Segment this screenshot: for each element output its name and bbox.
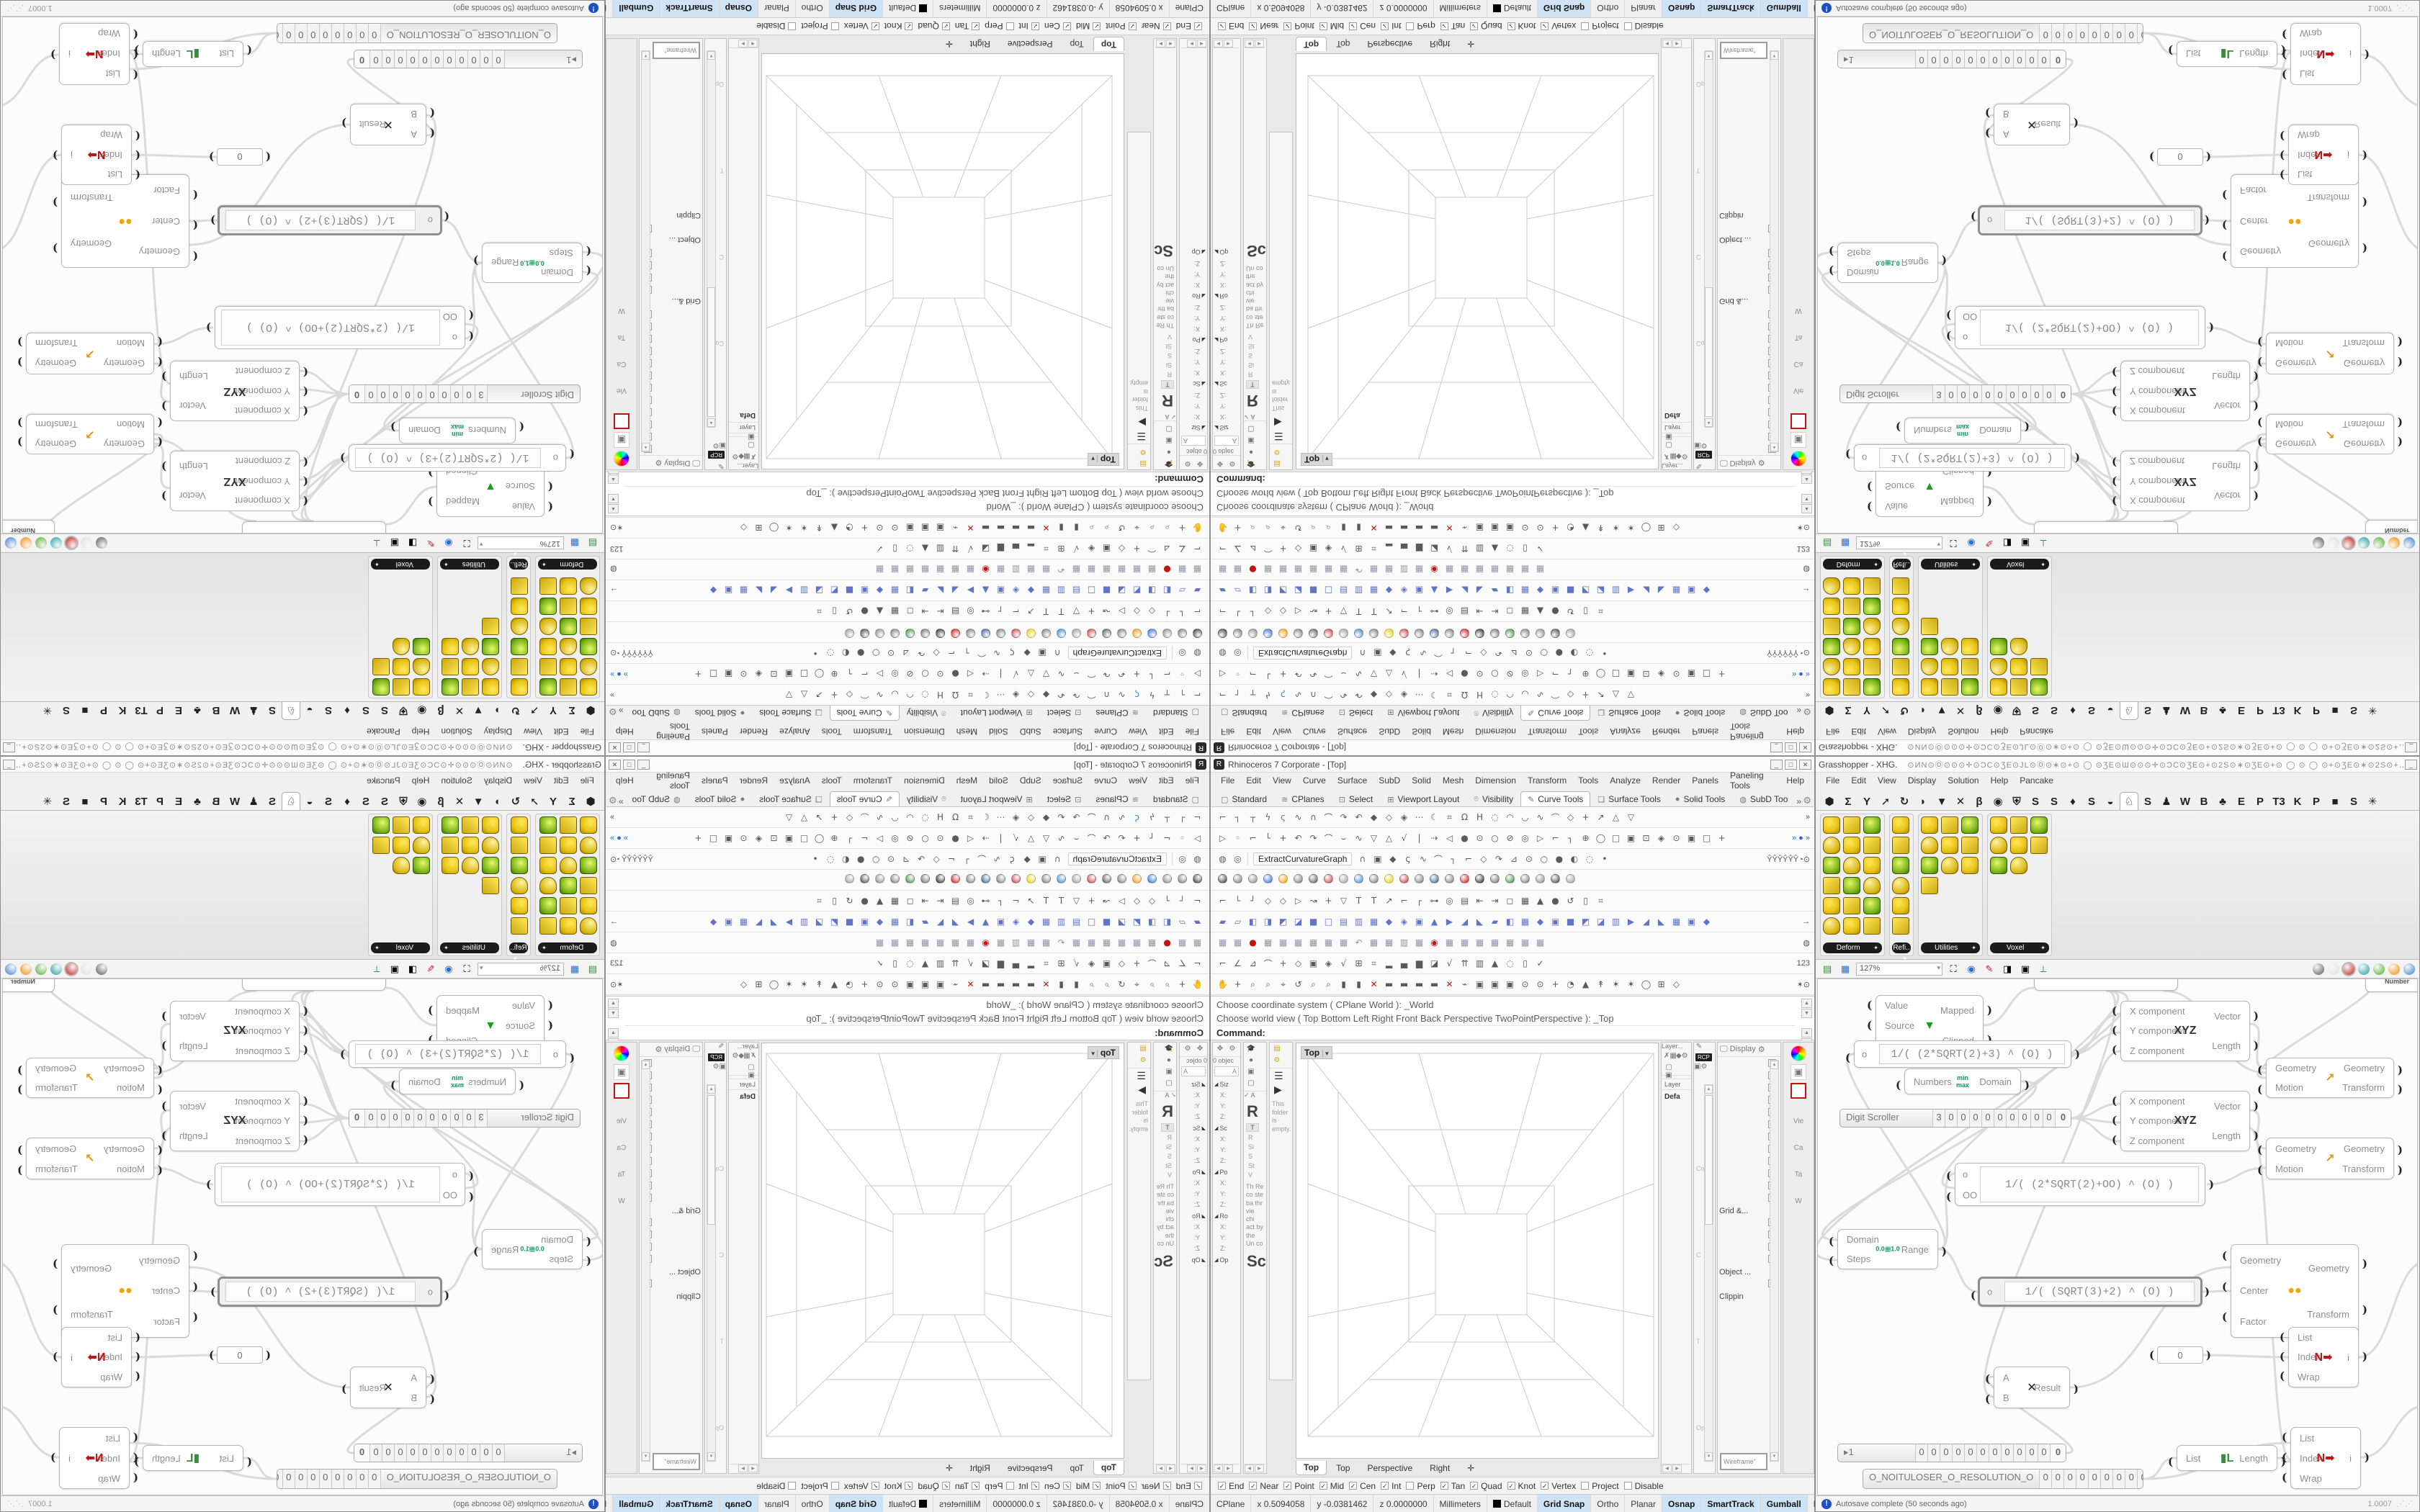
output-port[interactable]: )	[2362, 1350, 2367, 1363]
sphere-icon[interactable]	[1039, 874, 1054, 886]
layers-icon[interactable]: ◆⚙	[1676, 451, 1686, 460]
preview-ball-icon[interactable]	[96, 538, 107, 549]
render-icon[interactable]: ●	[1246, 446, 1256, 456]
toolbar-icon[interactable]: ▣	[721, 585, 736, 595]
gh-node-mult[interactable]: ABResult✕(()	[350, 104, 426, 145]
component-icon[interactable]	[580, 877, 597, 894]
gh-tab-22[interactable]: E	[169, 793, 188, 810]
toolbar-icon[interactable]: ┐	[842, 833, 857, 843]
toolbar-row-overflow[interactable]: →	[610, 586, 618, 595]
checkbox-checked-icon[interactable]: ✓	[1194, 1482, 1202, 1490]
toolbar-icon[interactable]: ▽	[1039, 669, 1054, 679]
input-port[interactable]: (	[135, 130, 140, 143]
toolbar-icon[interactable]: ▰	[1190, 585, 1205, 595]
gh-menu-item-solution[interactable]: Solution	[435, 725, 478, 738]
checkbox-checked-icon[interactable]: ✓	[905, 22, 913, 30]
input-port[interactable]: (	[2112, 475, 2117, 488]
status-grid-snap[interactable]: Grid Snap	[1538, 0, 1591, 17]
checkbox-checked-icon[interactable]: ✓	[1319, 1482, 1327, 1490]
gh-tab-19[interactable]: W	[2176, 793, 2195, 810]
toolbar-icon[interactable]: ▣	[1548, 585, 1563, 595]
sphere-icon[interactable]	[1412, 874, 1427, 886]
camera-icon[interactable]: ▣	[1791, 432, 1806, 448]
component-icon[interactable]	[1823, 618, 1840, 635]
toolbar-icon[interactable]: □	[706, 669, 721, 679]
toolbar-icon[interactable]: ⊿	[899, 854, 914, 864]
gh-node-length[interactable]: ListLength▮L()	[143, 1445, 243, 1471]
preview-ball-icon[interactable]	[2388, 963, 2400, 975]
toolbar-icon[interactable]: ⊿	[1506, 854, 1521, 864]
palette-group-footer[interactable]: Deform✦	[1823, 942, 1882, 953]
toolbar-icon[interactable]: ⌣	[1069, 833, 1084, 844]
gh-node-scroller1[interactable]: Digit Scroller30000000000)	[349, 1109, 581, 1128]
input-port[interactable]: (	[2112, 495, 2117, 508]
scroller-digit[interactable]: 0	[402, 385, 414, 402]
osnap-end[interactable]: ✓End	[1218, 22, 1244, 32]
checkbox-checked-icon[interactable]: ✓	[1283, 22, 1291, 30]
toolbar-icon[interactable]: ⌗	[963, 690, 978, 701]
gh-node-expr3[interactable]: 1/( (SQRT(3)+2) ^ (O) )o()	[1978, 1277, 2202, 1307]
toolbar-icon[interactable]: ◇	[842, 690, 857, 700]
gh-menu-item-display[interactable]: Display	[478, 774, 518, 787]
component-icon[interactable]	[482, 638, 499, 655]
preview-ball-icon[interactable]	[2373, 963, 2385, 975]
toolbar-icon[interactable]: ┌	[1412, 896, 1427, 906]
scroller-digit[interactable]: 0	[426, 1110, 439, 1127]
toolbar-icon[interactable]: ▷	[1190, 833, 1205, 843]
toolbar-icon[interactable]: ▣	[721, 669, 736, 679]
toolbar-icon[interactable]: └	[1144, 669, 1160, 679]
toolbar-icon[interactable]: ⌐	[1215, 958, 1230, 968]
toolbar-icon[interactable]: ◇	[1114, 544, 1129, 554]
component-icon[interactable]	[1941, 816, 1958, 834]
gh-titlebar[interactable]: Grasshopper - XHG. ⊙ИN⊙Ⓞ⊙⊙⊙✛⊙ƆC⊙ƷE⊙JL⊙Ⓞ⊙…	[1, 739, 604, 755]
component-icon[interactable]	[482, 678, 499, 696]
toolbar-icon[interactable]: ⌒	[974, 647, 990, 660]
gh-node-expr3[interactable]: 1/( (SQRT(3)+2) ^ (O) )o()	[1978, 205, 2202, 235]
preview-ball-icon[interactable]	[2343, 963, 2354, 975]
toolbar-icon[interactable]: ⌒	[1084, 811, 1099, 824]
output-port[interactable]: )	[2398, 1143, 2403, 1156]
gh-tab-18[interactable]: ♟	[244, 793, 263, 810]
toolbar-icon[interactable]: ◩	[827, 585, 842, 595]
component-icon[interactable]	[1843, 618, 1860, 635]
toolbar-icon[interactable]: ⊿	[1160, 958, 1175, 968]
toolbar-icon[interactable]: ▄	[1008, 958, 1023, 968]
osnap-vertex[interactable]: ✓Vertex	[1541, 1481, 1576, 1491]
gh-node-scale[interactable]: GeometryCenterFactorGeometryTransform●●(…	[2231, 1244, 2359, 1338]
output-port[interactable]: )	[2025, 1079, 2030, 1092]
component-icon[interactable]	[580, 577, 597, 595]
toolbar-icon[interactable]: ▰	[918, 917, 933, 927]
toolbar-icon[interactable]: ◍	[1190, 648, 1205, 658]
viewport-tab-top[interactable]: Top	[1296, 37, 1327, 51]
osnap-cen[interactable]: ✓Cen	[1349, 1481, 1376, 1491]
maximize-icon[interactable]: □	[1785, 743, 1797, 753]
gh-tab-17[interactable]: S	[263, 793, 282, 810]
toolbar-icon[interactable]: ┐	[959, 648, 974, 658]
menu-item-tools[interactable]: Tools	[1572, 774, 1604, 787]
output-port[interactable]: )	[53, 1303, 58, 1316]
scroller-digit[interactable]: 0	[2038, 1444, 2050, 1462]
input-port[interactable]: (	[1829, 245, 1834, 258]
toolbar-icon[interactable]: ▣	[1502, 979, 1518, 989]
scroller-digit[interactable]: 0	[2030, 385, 2043, 402]
component-icon[interactable]	[539, 837, 557, 854]
toolbar-icon[interactable]: ◪	[1114, 917, 1129, 927]
toolbar-icon[interactable]: ⌗	[1366, 544, 1381, 554]
gh-tab-1[interactable]: Σ	[1839, 702, 1857, 719]
render-tab[interactable]: T	[1246, 380, 1259, 389]
component-icon[interactable]	[1863, 837, 1881, 854]
toolbar-icon[interactable]: ●	[1548, 606, 1563, 616]
scroll-up-icon[interactable]: ▲	[608, 504, 619, 513]
side-tab-label[interactable]: Vie	[606, 387, 637, 395]
toolbar-icon[interactable]: ⌐	[1397, 606, 1412, 616]
scroller-digits[interactable]: 30000000000	[349, 1110, 488, 1127]
toolbar-tab-select[interactable]: ⊡Select	[1040, 791, 1089, 806]
component-icon[interactable]	[442, 658, 459, 675]
status-grid-snap[interactable]: Grid Snap	[829, 0, 882, 17]
gh-node-resscroller[interactable]: O_NOITULOSER_O_RESOLUTION_O00000000030)	[277, 1469, 557, 1489]
preview-ball-icon[interactable]	[2373, 538, 2385, 549]
toolbar-icon[interactable]: ◧	[1502, 585, 1518, 595]
gh-tab-23[interactable]: P	[151, 793, 169, 810]
sphere-icon[interactable]	[1114, 874, 1129, 886]
component-icon[interactable]	[1892, 678, 1909, 696]
output-port[interactable]: )	[206, 321, 211, 334]
toolbar-icon[interactable]: ⌗	[1442, 812, 1457, 823]
checkbox-checked-icon[interactable]: ✓	[942, 22, 950, 30]
toolbar-icon[interactable]: ◈	[1397, 917, 1412, 927]
scroller-digit[interactable]: 0	[431, 50, 444, 68]
component-icon[interactable]	[511, 897, 528, 914]
toolbar-icon[interactable]: ▦	[1502, 564, 1518, 575]
strip-scrollbar[interactable]: ▲▼	[1704, 1084, 1713, 1462]
checkbox-checked-icon[interactable]: ✓	[1319, 22, 1327, 30]
toolbar-icon[interactable]: Η	[933, 690, 948, 700]
gh-tab-24[interactable]: T3	[132, 793, 151, 810]
scroller-digit[interactable]: 0	[354, 1444, 370, 1462]
component-icon[interactable]	[580, 816, 597, 834]
checkbox-checked-icon[interactable]: ✓	[1249, 22, 1257, 30]
component-icon[interactable]	[511, 877, 528, 894]
toolbar-icon[interactable]: ς	[1276, 812, 1291, 822]
component-icon[interactable]	[2030, 658, 2048, 675]
sphere-icon[interactable]	[1160, 626, 1175, 638]
checkbox-checked-icon[interactable]: ✓	[905, 1482, 913, 1490]
component-icon[interactable]	[560, 816, 577, 834]
render-tab[interactable]: T	[1161, 1123, 1174, 1132]
arrow-down-icon[interactable]: ▼	[1705, 1452, 1713, 1461]
render-scrollbar[interactable]: ◀▶	[1245, 40, 1265, 48]
hamburger-icon[interactable]: ☰	[1274, 430, 1288, 442]
toolbar-icon[interactable]: ▦	[1084, 937, 1099, 948]
scroller-digit[interactable]: 0	[493, 1444, 505, 1462]
toolbar-icon[interactable]: ⌕	[1144, 523, 1160, 534]
checkbox-checked-icon[interactable]: ✓	[1381, 22, 1389, 30]
toolbar-icon[interactable]: ⊡	[766, 833, 781, 843]
gh-tab-23[interactable]: P	[151, 702, 169, 719]
toolbar-icon[interactable]: +	[827, 812, 842, 822]
toolbar-icon[interactable]: ▽	[1069, 896, 1084, 906]
toolbar-icon[interactable]: □	[1699, 833, 1714, 843]
toolbar-icon[interactable]: ▬	[1427, 523, 1442, 533]
toolbar-icon[interactable]: ◧	[1502, 917, 1518, 927]
input-port[interactable]: (	[570, 448, 575, 461]
component-icon[interactable]	[1941, 857, 1958, 874]
component-icon[interactable]	[393, 837, 410, 854]
toolbar-icon[interactable]: ⌒	[1144, 543, 1160, 555]
gh-tab-17[interactable]: S	[2138, 702, 2157, 719]
osnap-point[interactable]: ✓Point	[1106, 22, 1136, 32]
side-tab-label[interactable]: W	[1783, 307, 1814, 315]
toolbar-icon[interactable]: ◆	[1020, 648, 1035, 658]
layer-row-default[interactable]: Defa	[1664, 1093, 1688, 1101]
input-port[interactable]: (	[1829, 264, 1834, 277]
scroller-digit[interactable]: 0	[2112, 1470, 2125, 1488]
toolbar-icon[interactable]: ↶	[1114, 669, 1129, 679]
scroll-down-icon[interactable]: ▼	[608, 494, 619, 503]
component-icon[interactable]	[482, 837, 499, 854]
save-icon[interactable]: ▦	[1838, 963, 1852, 975]
gh-tab-21[interactable]: ♣	[188, 793, 207, 810]
input-port[interactable]: (	[193, 250, 198, 263]
gh-tab-22[interactable]: E	[2232, 702, 2251, 719]
sphere-icon[interactable]	[1129, 874, 1144, 886]
toolbar-icon[interactable]: ▆	[1412, 958, 1427, 968]
gh-tab-7[interactable]: ✕	[450, 702, 469, 719]
toolbar-icon[interactable]: ↺	[842, 896, 857, 906]
toolbar-icon[interactable]: ◪	[1427, 958, 1442, 968]
sphere-icon[interactable]	[1381, 626, 1397, 638]
toolbar-icon[interactable]: ς	[1005, 854, 1020, 864]
toolbar-tab-solid-tools[interactable]: ●Solid Tools	[688, 791, 752, 806]
toolbar-icon[interactable]: ◆	[1366, 690, 1381, 700]
gh-tab-25[interactable]: K	[2288, 793, 2307, 810]
toolbar-icon[interactable]: ◪	[1114, 585, 1129, 595]
toolbar-icon[interactable]: ∿	[1533, 690, 1548, 700]
resize-grip-icon[interactable]: ⋰⋰	[2396, 4, 2414, 13]
input-port[interactable]: (	[430, 127, 435, 140]
toolbar-icon[interactable]: ◇	[1563, 690, 1578, 700]
gh-tab-27[interactable]: ■	[76, 793, 94, 810]
toolbar-icon[interactable]: √	[1397, 833, 1412, 843]
toolbar-icon[interactable]: ⌣	[1336, 833, 1351, 844]
toolbar-icon[interactable]: ┐	[1563, 833, 1578, 843]
toolbar-icon[interactable]: ▦	[872, 937, 887, 948]
gh-node-mult[interactable]: ABResult✕(()	[350, 1367, 426, 1408]
output-port[interactable]: )	[1987, 495, 1992, 508]
toolbar-icon[interactable]: ■	[1563, 917, 1578, 927]
toolbar-icon[interactable]: ◌	[823, 854, 838, 864]
scroller-digit[interactable]: 0	[2043, 385, 2055, 402]
toolbar-icon[interactable]: ↷	[1099, 669, 1114, 679]
toolbar-icon[interactable]: ▦	[1260, 937, 1276, 948]
render-icon[interactable]: ●	[1246, 1056, 1256, 1066]
input-port[interactable]: (	[2280, 130, 2285, 143]
gh-node-scroller1[interactable]: Digit Scroller30000000000)	[1839, 384, 2071, 403]
gh-node-vec2[interactable]: X componentY componentZ componentVectorL…	[170, 1091, 300, 1151]
status-planar[interactable]: Planar	[1625, 0, 1662, 17]
input-port[interactable]: (	[303, 1114, 308, 1127]
status-ortho[interactable]: Ortho	[1591, 0, 1625, 17]
component-icon[interactable]	[1843, 917, 1860, 935]
input-port[interactable]: (	[2257, 1143, 2262, 1156]
scroller-digit[interactable]: 0	[320, 1470, 332, 1488]
gh-canvas[interactable]: NumberValueSourceTargetMappedClipped▼(((…	[2, 978, 603, 1495]
toolbar-icon[interactable]: ◈	[1654, 669, 1669, 679]
toolbar-icon[interactable]: ⊙	[1518, 523, 1533, 533]
toolbar-icon[interactable]: ⌕	[1160, 523, 1175, 534]
osnap-near[interactable]: ✓Near	[1249, 1481, 1278, 1491]
arrow-up-icon[interactable]: ▲	[707, 418, 715, 427]
toolbar-icon[interactable]: ς	[1005, 648, 1020, 658]
gh-menu-item-solution[interactable]: Solution	[1942, 774, 1984, 787]
status-x-0-5094058[interactable]: x 0.5094058	[1251, 1495, 1311, 1512]
component-icon[interactable]	[511, 857, 528, 874]
gh-tab-12[interactable]: S	[357, 793, 375, 810]
checkbox-checked-icon[interactable]: ✓	[1163, 1482, 1171, 1490]
sphere-icon[interactable]	[1563, 874, 1578, 886]
toolbar-icon[interactable]: ⊕	[1578, 833, 1593, 843]
component-icon[interactable]	[413, 857, 430, 874]
toolbar-icon[interactable]: ⌣	[1069, 669, 1084, 680]
input-port[interactable]: (	[1896, 420, 1901, 433]
toolbar-icon[interactable]: ■	[1099, 585, 1114, 595]
toolbar-icon[interactable]: ⌒	[1321, 668, 1336, 680]
scroller-digit[interactable]: 0	[1927, 50, 1940, 68]
toolbar-row-overflow[interactable]: →	[610, 917, 618, 926]
scroller-digit[interactable]: 0	[2025, 50, 2038, 68]
toolbar-icon[interactable]: ↟	[812, 523, 827, 533]
toolbar-icon[interactable]: ■	[1306, 585, 1321, 595]
sphere-icon[interactable]	[1175, 874, 1190, 886]
component-icon[interactable]	[413, 658, 430, 675]
toolbar-icon[interactable]: ◡	[887, 812, 902, 822]
toolbar-icon[interactable]: ▶	[781, 585, 797, 595]
toolbar-icon[interactable]: √	[1008, 833, 1023, 843]
toolbar-icon[interactable]: ▦	[1669, 585, 1684, 595]
toolbar-icon[interactable]: ┌	[993, 606, 1008, 616]
toolbar-icon[interactable]: ✶	[781, 979, 797, 989]
toolbar-icon[interactable]: ┐	[842, 669, 857, 679]
toolbar-icon[interactable]: ⌗	[1442, 690, 1457, 701]
toolbar-icon[interactable]: ⌒	[1548, 811, 1563, 824]
toolbar-icon[interactable]: ▦	[963, 937, 978, 948]
toolbar-icon[interactable]: ▦	[993, 937, 1008, 948]
osnap-knot[interactable]: ✓Knot	[1507, 22, 1536, 32]
sphere-icon[interactable]	[1245, 626, 1260, 638]
gh-node-resscroller[interactable]: O_NOITULOSER_O_RESOLUTION_O00000000030)	[1863, 23, 2143, 43]
preview-ball-icon[interactable]	[81, 963, 92, 975]
preview-eye-icon[interactable]: ◉	[442, 963, 456, 975]
toolbar-icon[interactable]: ●	[1457, 669, 1472, 679]
sphere-icon[interactable]	[1336, 626, 1351, 638]
osnap-quad[interactable]: ✓Quad	[1470, 22, 1502, 32]
sphere-icon[interactable]	[887, 626, 902, 638]
sphere-icon[interactable]	[948, 874, 963, 886]
toolbar-icon[interactable]: |	[993, 833, 1008, 843]
component-icon[interactable]	[1863, 658, 1881, 675]
toolbar-icon[interactable]: ⊞	[1351, 958, 1366, 968]
toolbar-icon[interactable]: ▬	[1397, 523, 1412, 533]
status-default[interactable]: Default	[882, 0, 933, 17]
viewport-title-chip[interactable]: Top▾	[1301, 1046, 1332, 1059]
component-icon[interactable]	[1921, 618, 1938, 635]
toolbar-icon[interactable]: ▥	[1008, 937, 1023, 948]
component-icon[interactable]	[539, 877, 557, 894]
toolbar-icon[interactable]: ⌕	[1099, 979, 1114, 990]
input-port[interactable]: (	[1867, 1019, 1872, 1032]
output-port[interactable]: )	[2365, 48, 2370, 61]
boxedit-scrollbar[interactable]: ◀▶	[1214, 40, 1240, 48]
narrow-panel[interactable]: ✎RCP▣⚙▲▼CoCTOp	[704, 38, 727, 470]
status-default[interactable]: Default	[1487, 0, 1538, 17]
checkbox-unchecked-icon[interactable]	[788, 1482, 796, 1490]
scroller-digit[interactable]: 0	[451, 385, 463, 402]
toolbar-icon[interactable]: ⌐	[1215, 606, 1230, 616]
toolbar-icon[interactable]: ▣	[1035, 854, 1050, 864]
toolbar-icon[interactable]: ▦	[1023, 937, 1039, 948]
sphere-icon[interactable]	[857, 626, 872, 638]
render-list-item[interactable]: V	[1154, 1171, 1172, 1179]
toolbar-icon[interactable]: ◢	[766, 585, 781, 595]
strip-icon[interactable]: ✎	[716, 1043, 726, 1052]
resize-grip-icon[interactable]: ⋰⋰	[6, 4, 24, 13]
toolbar-icon[interactable]: ▦	[902, 564, 918, 575]
input-port[interactable]: (	[548, 1019, 553, 1032]
toolbar-tab-solid-tools[interactable]: ●Solid Tools	[688, 706, 752, 721]
preview-ball-icon[interactable]	[66, 538, 77, 549]
toolbar-icon[interactable]: ┐	[1175, 812, 1190, 822]
toolbar-icon[interactable]: ▣	[1502, 523, 1518, 533]
toolbar-icon[interactable]: ▦	[1366, 917, 1381, 927]
toolbar-icon[interactable]: ▣	[993, 585, 1008, 595]
toolbar-icon[interactable]: ▲	[918, 958, 933, 968]
toolbar-icon[interactable]: √	[963, 544, 978, 554]
scroller-digit[interactable]: 0	[1957, 385, 1969, 402]
scroller-digit[interactable]: 0	[2018, 1110, 2030, 1127]
gh-node-length[interactable]: ListLength▮L()	[143, 41, 243, 67]
toolbar-icon[interactable]: +	[1276, 669, 1291, 679]
red-frame-icon[interactable]	[614, 413, 629, 429]
camera-icon[interactable]: ▣	[2018, 963, 2033, 975]
arrow-up-icon[interactable]: ▲	[1705, 418, 1713, 427]
component-icon[interactable]	[482, 658, 499, 675]
toolbar-icon[interactable]: ▆	[1412, 544, 1427, 554]
toolbar-icon[interactable]: +	[691, 669, 706, 679]
toolbar-icon[interactable]: ⊞	[1654, 523, 1669, 533]
gh-menu-item-file[interactable]: File	[1820, 774, 1845, 787]
toolbar-icon[interactable]: ▦	[1039, 564, 1054, 575]
viewport-tab-right[interactable]: Right	[962, 1461, 998, 1475]
scroll-up-icon[interactable]: ▲	[608, 474, 619, 484]
arrow-left-icon[interactable]: ◀	[1214, 40, 1223, 48]
menu-item-view[interactable]: View	[1123, 725, 1153, 738]
gh-tab-21[interactable]: ♣	[2213, 702, 2232, 719]
color-wheel-icon[interactable]	[614, 1045, 629, 1061]
toolbar-icon[interactable]: ⊙	[1533, 523, 1548, 533]
toolbar-icon[interactable]: ▣	[918, 523, 933, 533]
scroller-digit[interactable]: 0	[1981, 385, 1994, 402]
toolbar-icon[interactable]: ∿	[1114, 690, 1129, 700]
osnap-quad[interactable]: ✓Quad	[1470, 1481, 1502, 1491]
toolbar-icon[interactable]: ↗	[1381, 606, 1397, 616]
arrow-up-icon[interactable]: ▲	[642, 1061, 650, 1069]
checkbox-checked-icon[interactable]: ✓	[871, 22, 879, 30]
toolbar-icon[interactable]: △	[1023, 669, 1039, 679]
